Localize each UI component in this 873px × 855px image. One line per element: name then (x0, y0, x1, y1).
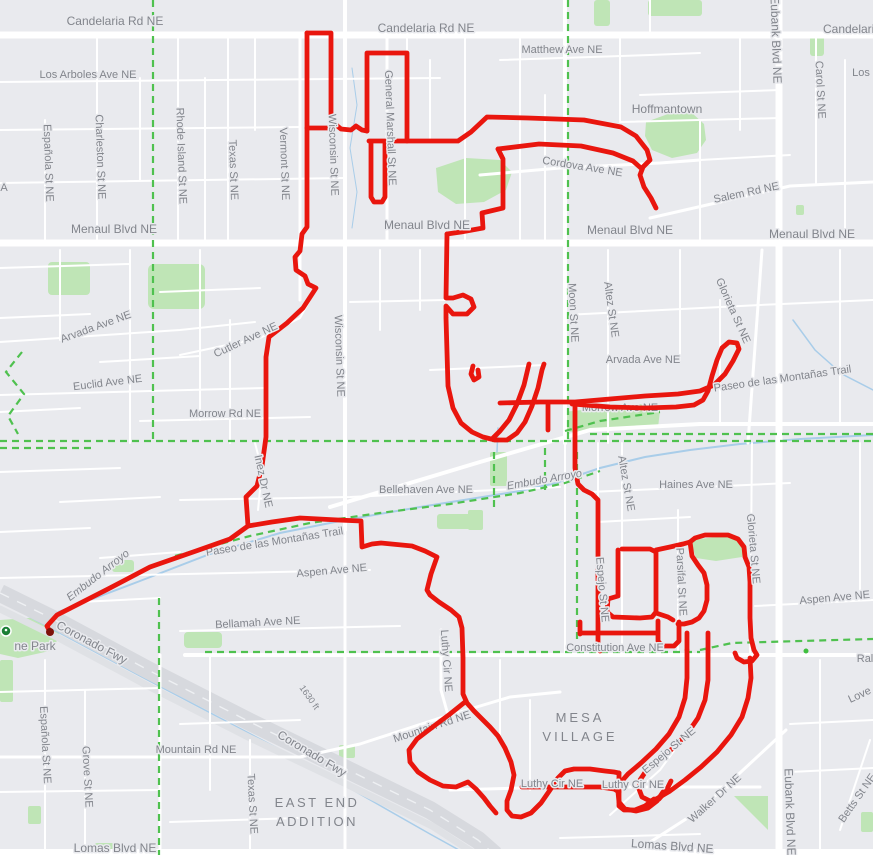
map-label: Candelaria (823, 22, 873, 36)
park-area (594, 0, 610, 26)
map-label: ADDITION (276, 814, 358, 829)
map-label: Candelaria Rd NE (67, 14, 164, 28)
map-label: MESA (556, 710, 605, 725)
map-label: Los (852, 67, 870, 79)
map-label: Morrow Rd NE (189, 408, 261, 420)
map-label: Los Arboles Ave NE (39, 69, 136, 81)
park-area (861, 812, 873, 832)
map-label: Ral (857, 653, 873, 665)
map-view[interactable]: Morrow Ave NEPaseo de las Montañas Trail… (0, 0, 873, 855)
map-label: Arvada Ave NE (606, 354, 680, 366)
park-area (796, 205, 804, 215)
map-label: Haines Ave NE (659, 479, 733, 491)
map-label: Candelaria Rd NE (378, 21, 475, 35)
map-label: Matthew Ave NE (521, 44, 602, 56)
park-area (0, 660, 13, 702)
map-label: Lomas Blvd NE (74, 841, 157, 855)
park-area (648, 0, 702, 16)
map-canvas[interactable]: Morrow Ave NEPaseo de las Montañas Trail… (0, 0, 873, 855)
map-label: Luthy Cir NE (602, 779, 664, 791)
map-label: Hoffmantown (632, 102, 702, 116)
map-label: Texas St NE (226, 139, 240, 200)
map-label: Vermont St NE (277, 127, 292, 200)
park-area (468, 510, 483, 530)
route-end-dot (46, 628, 54, 636)
park-area (184, 632, 222, 648)
map-label: A (0, 182, 8, 194)
map-label: ne Park (14, 639, 56, 653)
park-poi-glyph (5, 629, 8, 632)
map-label: Menaul Blvd NE (587, 223, 673, 237)
map-label: Bellehaven Ave NE (379, 484, 473, 496)
map-label: Menaul Blvd NE (769, 227, 855, 241)
map-label: Mountain Rd NE (156, 744, 237, 756)
park-area (28, 806, 41, 824)
map-label: EAST END (275, 795, 360, 810)
map-label: VILLAGE (542, 729, 617, 744)
park-area (148, 264, 205, 309)
trail-node (804, 649, 809, 654)
map-label: Constitution Ave NE (566, 642, 664, 654)
map-label: Menaul Blvd NE (71, 222, 157, 236)
map-label: Menaul Blvd NE (384, 218, 470, 232)
map-label: Luthy Cir NE (521, 778, 583, 790)
